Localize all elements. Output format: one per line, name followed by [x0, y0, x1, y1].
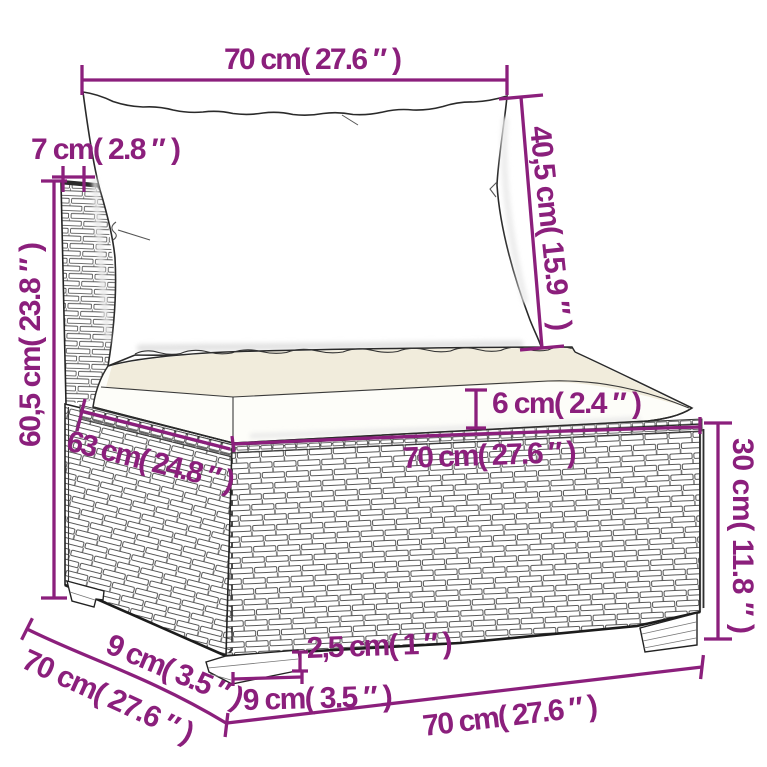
- svg-text:2,5 cm( 1 ″ ): 2,5 cm( 1 ″ ): [306, 627, 453, 665]
- svg-text:6 cm( 2.4 ″ ): 6 cm( 2.4 ″ ): [492, 387, 642, 420]
- svg-text:70 cm( 27.6 ″ ): 70 cm( 27.6 ″ ): [402, 436, 577, 475]
- svg-text:60,5 cm( 23.8 ″ ): 60,5 cm( 23.8 ″ ): [14, 242, 47, 447]
- svg-text:7 cm( 2.8 ″ ): 7 cm( 2.8 ″ ): [31, 133, 181, 166]
- svg-text:70 cm( 27.6 ″ ): 70 cm( 27.6 ″ ): [224, 43, 402, 76]
- svg-text:30 cm( 11.8 ″ ): 30 cm( 11.8 ″ ): [726, 438, 759, 634]
